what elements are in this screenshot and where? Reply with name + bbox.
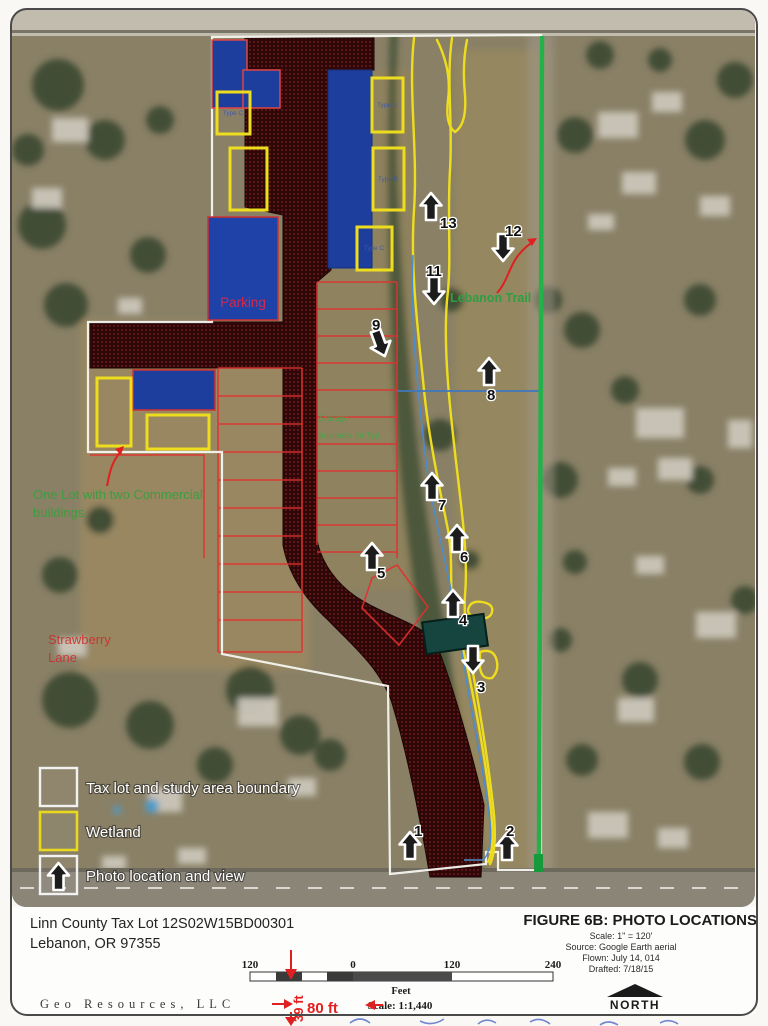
tax-lot-address-line1: Linn County Tax Lot 12S02W15BD00301 — [30, 916, 294, 932]
scale-bar-segment — [353, 972, 452, 981]
photo-point-number: 2 — [506, 823, 514, 840]
scale-tick: 120 — [444, 959, 461, 971]
photo-point-number: 9 — [372, 317, 380, 334]
lebanon-trail-label: Lebanon Trail — [450, 291, 531, 305]
photo-point-number: 5 — [377, 565, 385, 582]
strawberry-lane-label-1: Strawberry — [48, 632, 111, 647]
scale-tick: 0 — [350, 959, 356, 971]
legend-item-boundary: Tax lot and study area boundary — [86, 780, 300, 797]
photo-point-number: 3 — [477, 679, 485, 696]
building-west — [133, 370, 215, 410]
aerial-photo — [12, 10, 759, 907]
scale-unit: Feet — [391, 986, 411, 997]
tax-lot-address-line2: Lebanon, OR 97355 — [30, 936, 161, 952]
scale-tick: 240 — [545, 959, 562, 971]
photo-point-number: 4 — [459, 612, 468, 629]
photo-point-number: 8 — [487, 387, 495, 404]
scale-bar-segment — [327, 972, 353, 981]
wetland-type-label: Type C — [223, 110, 244, 117]
company-name: Geo Resources, LLC — [40, 997, 235, 1011]
legend-item-wetland: Wetland — [86, 824, 141, 841]
wetland-type-label: Type C — [364, 245, 385, 252]
figure-title: FIGURE 6B: PHOTO LOCATIONS — [523, 912, 757, 929]
storage-label-2: business lot Typ. — [319, 430, 382, 440]
scanned-figure-page: Type C Type A Type B Type C Parking Stra… — [0, 0, 768, 1026]
legend-boundary-swatch — [40, 768, 77, 806]
photo-point-number: 12 — [505, 223, 522, 240]
drafted-note: Drafted: 7/18/15 — [589, 964, 654, 974]
legend-wetland-swatch — [40, 812, 77, 850]
wetland-type-label: Type B — [378, 176, 398, 183]
flown-note: Flown: July 14, 014 — [582, 953, 660, 963]
photo-point-number: 1 — [414, 823, 422, 840]
parking-label: Parking — [220, 295, 266, 310]
building-tall — [328, 70, 372, 268]
scale-tick: 120 — [242, 959, 259, 971]
source-note: Source: Google Earth aerial — [565, 942, 676, 952]
photo-point-number: 11 — [426, 263, 442, 280]
one-lot-label-2: buildings. — [33, 505, 88, 520]
figure-canvas: Type C Type A Type B Type C Parking Stra… — [0, 0, 768, 1026]
blue-scribbles — [350, 1019, 678, 1025]
caption-band: Linn County Tax Lot 12S02W15BD00301 Leba… — [12, 907, 757, 1026]
photo-point-number: 13 — [440, 215, 457, 232]
green-line-endpoint — [534, 854, 543, 872]
storage-label-1: Storage — [319, 413, 349, 423]
one-lot-label-1: One Lot with two Commercial — [33, 487, 203, 502]
photo-point-number: 7 — [438, 497, 446, 514]
wetland-type-label: Type A — [377, 102, 398, 109]
strawberry-lane-label-2: Lane — [48, 650, 77, 665]
scale-note: Scale: 1" = 120' — [590, 931, 653, 941]
north-label: NORTH — [610, 998, 660, 1012]
photo-point-number: 6 — [460, 549, 468, 566]
green-boundary-line — [539, 36, 542, 856]
legend-item-photo: Photo location and view — [86, 868, 245, 885]
